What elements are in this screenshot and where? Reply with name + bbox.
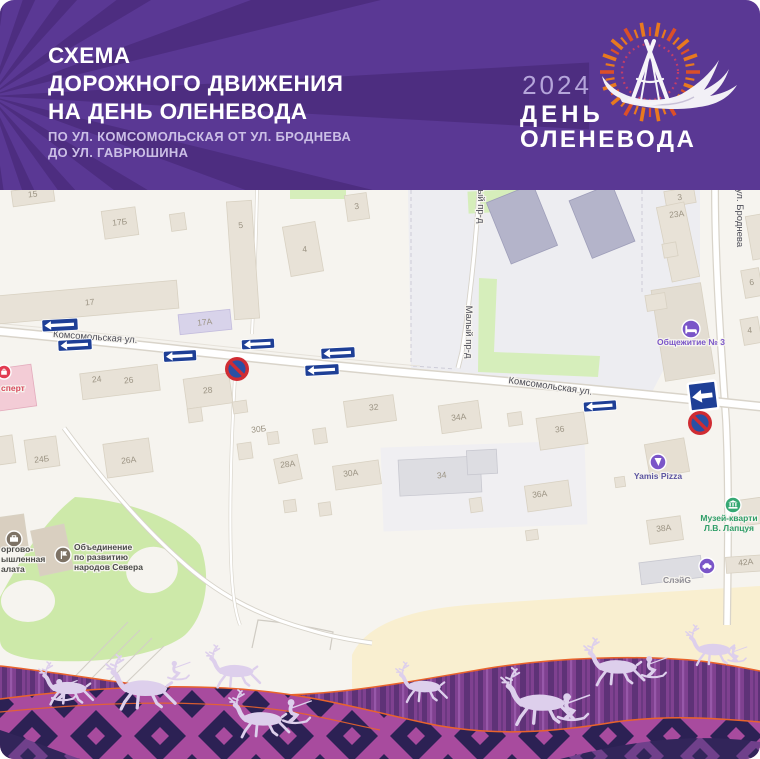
emblem-ray — [678, 40, 689, 49]
poi-label: по развитию — [74, 552, 128, 562]
header: СХЕМА ДОРОЖНОГО ДВИЖЕНИЯ НА ДЕНЬ ОЛЕНЕВО… — [0, 0, 760, 190]
poi-label: Общежитие № 3 — [657, 337, 725, 347]
emblem-ray — [606, 64, 615, 66]
poi-label: Музей-кварти — [700, 513, 757, 523]
emblem-ray — [611, 50, 619, 55]
street-label: ул. Броднева — [734, 190, 745, 248]
building-label: 26 — [123, 375, 134, 386]
building-label: 32 — [368, 402, 379, 413]
building-label: 17 — [84, 297, 95, 308]
emblem-ray — [641, 107, 643, 121]
poi-label: ышленная — [1, 554, 45, 564]
emblem-ray — [625, 29, 632, 41]
building-label: 42А — [738, 556, 754, 568]
poi-label: Yamis Pizza — [634, 471, 682, 481]
building-label: 30А — [343, 467, 359, 479]
emblem-ray — [612, 40, 623, 49]
one-way-arrow-icon — [58, 339, 93, 352]
emblem-ray — [606, 78, 615, 80]
poi-label: сперт — [1, 383, 25, 393]
building-label: 17Б — [112, 216, 128, 228]
building-label: 15 — [27, 190, 38, 199]
emblem-ray — [656, 23, 658, 37]
one-way-arrow-icon — [42, 318, 79, 332]
title-line: СХЕМА — [48, 42, 343, 70]
bed-icon — [682, 320, 700, 338]
building-label: 34А — [451, 411, 467, 423]
building-label: 38А — [656, 522, 672, 534]
emblem-ray — [685, 64, 694, 66]
emblem-ray — [635, 30, 638, 38]
building-label: 24 — [91, 374, 102, 385]
poi-label: Л.В. Лапцуя — [704, 523, 754, 533]
sun-chum-emblem — [580, 14, 760, 132]
one-way-arrow-icon — [163, 350, 197, 363]
no-parking-sign — [225, 357, 249, 381]
building-label: 23А — [669, 208, 685, 220]
poi-label: алата — [1, 564, 25, 574]
emblem-ray — [673, 38, 679, 45]
poster-subtitle: ПО УЛ. КОМСОМОЛЬСКАЯ ОТ УЛ. БРОДНЕВА ДО … — [48, 129, 351, 160]
emblem-ray — [635, 106, 638, 114]
one-way-arrow-icon — [305, 364, 340, 377]
emblem-ray — [603, 55, 616, 60]
building-label: 28 — [202, 385, 213, 396]
street-label: Малый пр-д — [463, 306, 474, 359]
chum-tent — [629, 41, 671, 104]
one-way-arrow-icon — [583, 400, 617, 412]
emblem-ray — [641, 23, 643, 37]
building-label: 34 — [436, 470, 447, 481]
one-way-sign — [687, 380, 718, 411]
one-way-arrow-icon — [241, 338, 274, 350]
title-line: ДОРОЖНОГО ДВИЖЕНИЯ — [48, 70, 343, 98]
one-way-arrow-icon — [321, 347, 356, 360]
building-label: 28А — [280, 458, 296, 470]
building-label: 26А — [121, 454, 137, 466]
poster-title: СХЕМА ДОРОЖНОГО ДВИЖЕНИЯ НА ДЕНЬ ОЛЕНЕВО… — [48, 42, 343, 126]
emblem-ray — [681, 50, 689, 55]
building-label: 36 — [554, 424, 565, 435]
building-label: 17А — [197, 316, 213, 328]
poi-label: народов Севера — [74, 562, 143, 572]
poi-label: Объединение — [74, 542, 133, 552]
poster: СХЕМА ДОРОЖНОГО ДВИЖЕНИЯ НА ДЕНЬ ОЛЕНЕВО… — [0, 0, 760, 759]
subtitle-line: ПО УЛ. КОМСОМОЛЬСКАЯ ОТ УЛ. БРОДНЕВА — [48, 129, 351, 145]
emblem-ray — [668, 29, 675, 41]
emblem-ray — [656, 107, 658, 121]
emblem-ray — [621, 38, 627, 45]
building-label: 24Б — [34, 453, 50, 465]
building-label: 30Б — [251, 423, 267, 435]
emblem-ray — [625, 103, 632, 115]
no-parking-sign — [688, 411, 712, 435]
emblem-ray — [662, 30, 665, 38]
map: 1517Б51717А34323А6424262824Б26А30Б28А30А… — [0, 190, 760, 759]
emblem-ray — [685, 78, 694, 80]
emblem-ray — [684, 55, 697, 60]
poi-label: оргово- — [1, 544, 33, 554]
poi-label: СлэйG — [663, 575, 691, 585]
street-label: Малый пр-д — [475, 190, 486, 224]
subtitle-line: ДО УЛ. ГАВРЮШИНА — [48, 145, 351, 161]
title-line: НА ДЕНЬ ОЛЕНЕВОДА — [48, 98, 343, 126]
building-label: 36А — [532, 488, 548, 500]
